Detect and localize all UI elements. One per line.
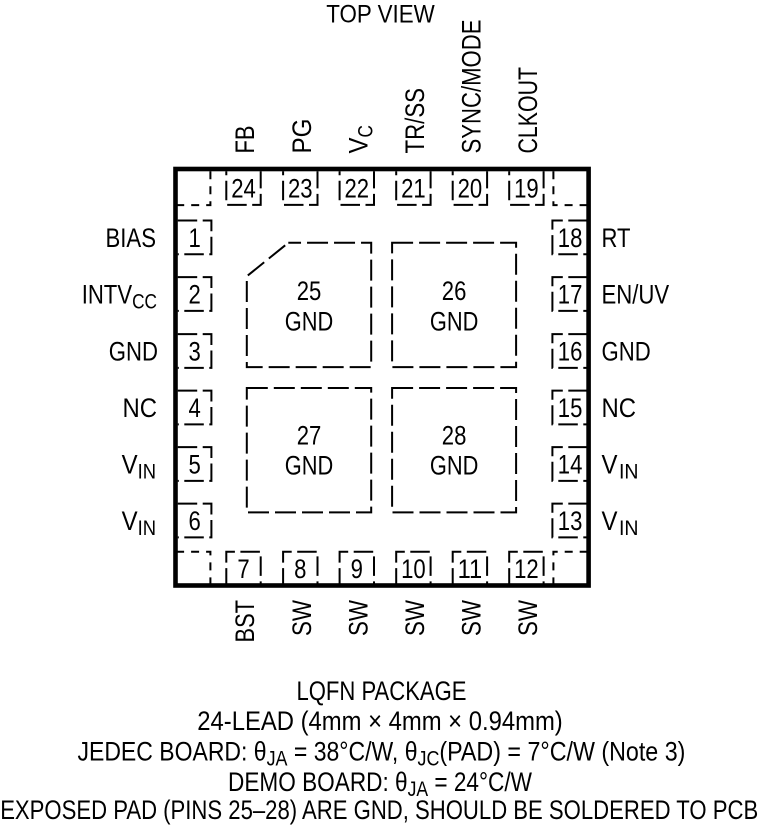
svg-text:NC: NC — [602, 393, 637, 423]
svg-text:NC: NC — [123, 393, 158, 423]
svg-text:V: V — [122, 450, 138, 480]
svg-text:BST: BST — [230, 600, 260, 643]
svg-text:TOP VIEW: TOP VIEW — [326, 1, 435, 29]
svg-text:24: 24 — [231, 173, 256, 203]
svg-text:22: 22 — [345, 173, 370, 203]
svg-text:V: V — [602, 506, 618, 536]
svg-text:SW: SW — [400, 600, 430, 636]
svg-text:14: 14 — [558, 450, 583, 480]
svg-text:18: 18 — [558, 223, 583, 253]
svg-text:GND: GND — [430, 307, 479, 337]
svg-text:CC: CC — [132, 291, 157, 314]
svg-text:17: 17 — [558, 280, 583, 310]
svg-text:IN: IN — [619, 461, 639, 484]
svg-text:BIAS: BIAS — [106, 223, 157, 253]
svg-text:20: 20 — [458, 173, 483, 203]
svg-text:SW: SW — [287, 600, 317, 636]
svg-text:8: 8 — [294, 554, 306, 584]
svg-text:EXPOSED PAD (PINS 25–28) ARE G: EXPOSED PAD (PINS 25–28) ARE GND, SHOULD… — [0, 795, 758, 825]
svg-text:GND: GND — [602, 337, 651, 367]
svg-text:6: 6 — [188, 506, 200, 536]
svg-text:15: 15 — [558, 393, 583, 423]
svg-text:FB: FB — [230, 126, 260, 154]
svg-text:4: 4 — [188, 393, 200, 423]
svg-text:GND: GND — [430, 451, 479, 481]
svg-text:(PAD) = 7°C/W (Note 3): (PAD) = 7°C/W (Note 3) — [439, 737, 685, 767]
svg-text:CLKOUT: CLKOUT — [513, 67, 543, 154]
svg-text:16: 16 — [558, 337, 583, 367]
svg-text:GND: GND — [285, 451, 334, 481]
svg-text:10: 10 — [401, 554, 426, 584]
svg-text:11: 11 — [458, 554, 483, 584]
svg-text:TR/SS: TR/SS — [400, 88, 430, 154]
svg-text:7: 7 — [237, 554, 249, 584]
svg-text:JEDEC BOARD: θ: JEDEC BOARD: θ — [78, 737, 267, 767]
svg-text:19: 19 — [514, 173, 539, 203]
svg-text:GND: GND — [109, 337, 158, 367]
svg-text:C: C — [354, 125, 377, 137]
svg-text:21: 21 — [401, 173, 426, 203]
svg-text:RT: RT — [602, 223, 631, 253]
svg-text:V: V — [122, 506, 138, 536]
svg-text:27: 27 — [297, 421, 322, 451]
svg-text:3: 3 — [188, 337, 200, 367]
svg-text:EN/UV: EN/UV — [602, 280, 670, 310]
svg-text:28: 28 — [442, 421, 467, 451]
svg-text:5: 5 — [188, 450, 200, 480]
svg-text:9: 9 — [351, 554, 363, 584]
svg-text:DEMO BOARD: θ: DEMO BOARD: θ — [228, 767, 408, 797]
svg-text:25: 25 — [297, 276, 322, 306]
svg-text:1: 1 — [188, 223, 200, 253]
svg-text:= 38°C/W, θ: = 38°C/W, θ — [288, 737, 418, 767]
svg-text:SW: SW — [513, 600, 543, 636]
svg-text:24-LEAD (4mm × 4mm × 0.94mm): 24-LEAD (4mm × 4mm × 0.94mm) — [197, 706, 563, 736]
svg-text:23: 23 — [288, 173, 313, 203]
svg-text:IN: IN — [619, 517, 639, 540]
svg-text:26: 26 — [442, 276, 467, 306]
svg-text:PG: PG — [287, 119, 317, 154]
svg-text:LQFN PACKAGE: LQFN PACKAGE — [297, 676, 467, 706]
svg-text:V: V — [602, 450, 618, 480]
svg-text:GND: GND — [285, 307, 334, 337]
svg-text:2: 2 — [188, 280, 200, 310]
svg-text:SW: SW — [343, 600, 373, 636]
svg-text:SW: SW — [457, 600, 487, 636]
svg-text:SYNC/MODE: SYNC/MODE — [457, 20, 487, 154]
svg-text:IN: IN — [138, 461, 156, 484]
svg-text:INTV: INTV — [82, 280, 132, 310]
svg-text:IN: IN — [138, 517, 156, 540]
svg-text:V: V — [343, 138, 373, 154]
svg-text:12: 12 — [514, 554, 539, 584]
svg-text:= 24°C/W: = 24°C/W — [428, 767, 532, 797]
svg-text:13: 13 — [558, 506, 583, 536]
